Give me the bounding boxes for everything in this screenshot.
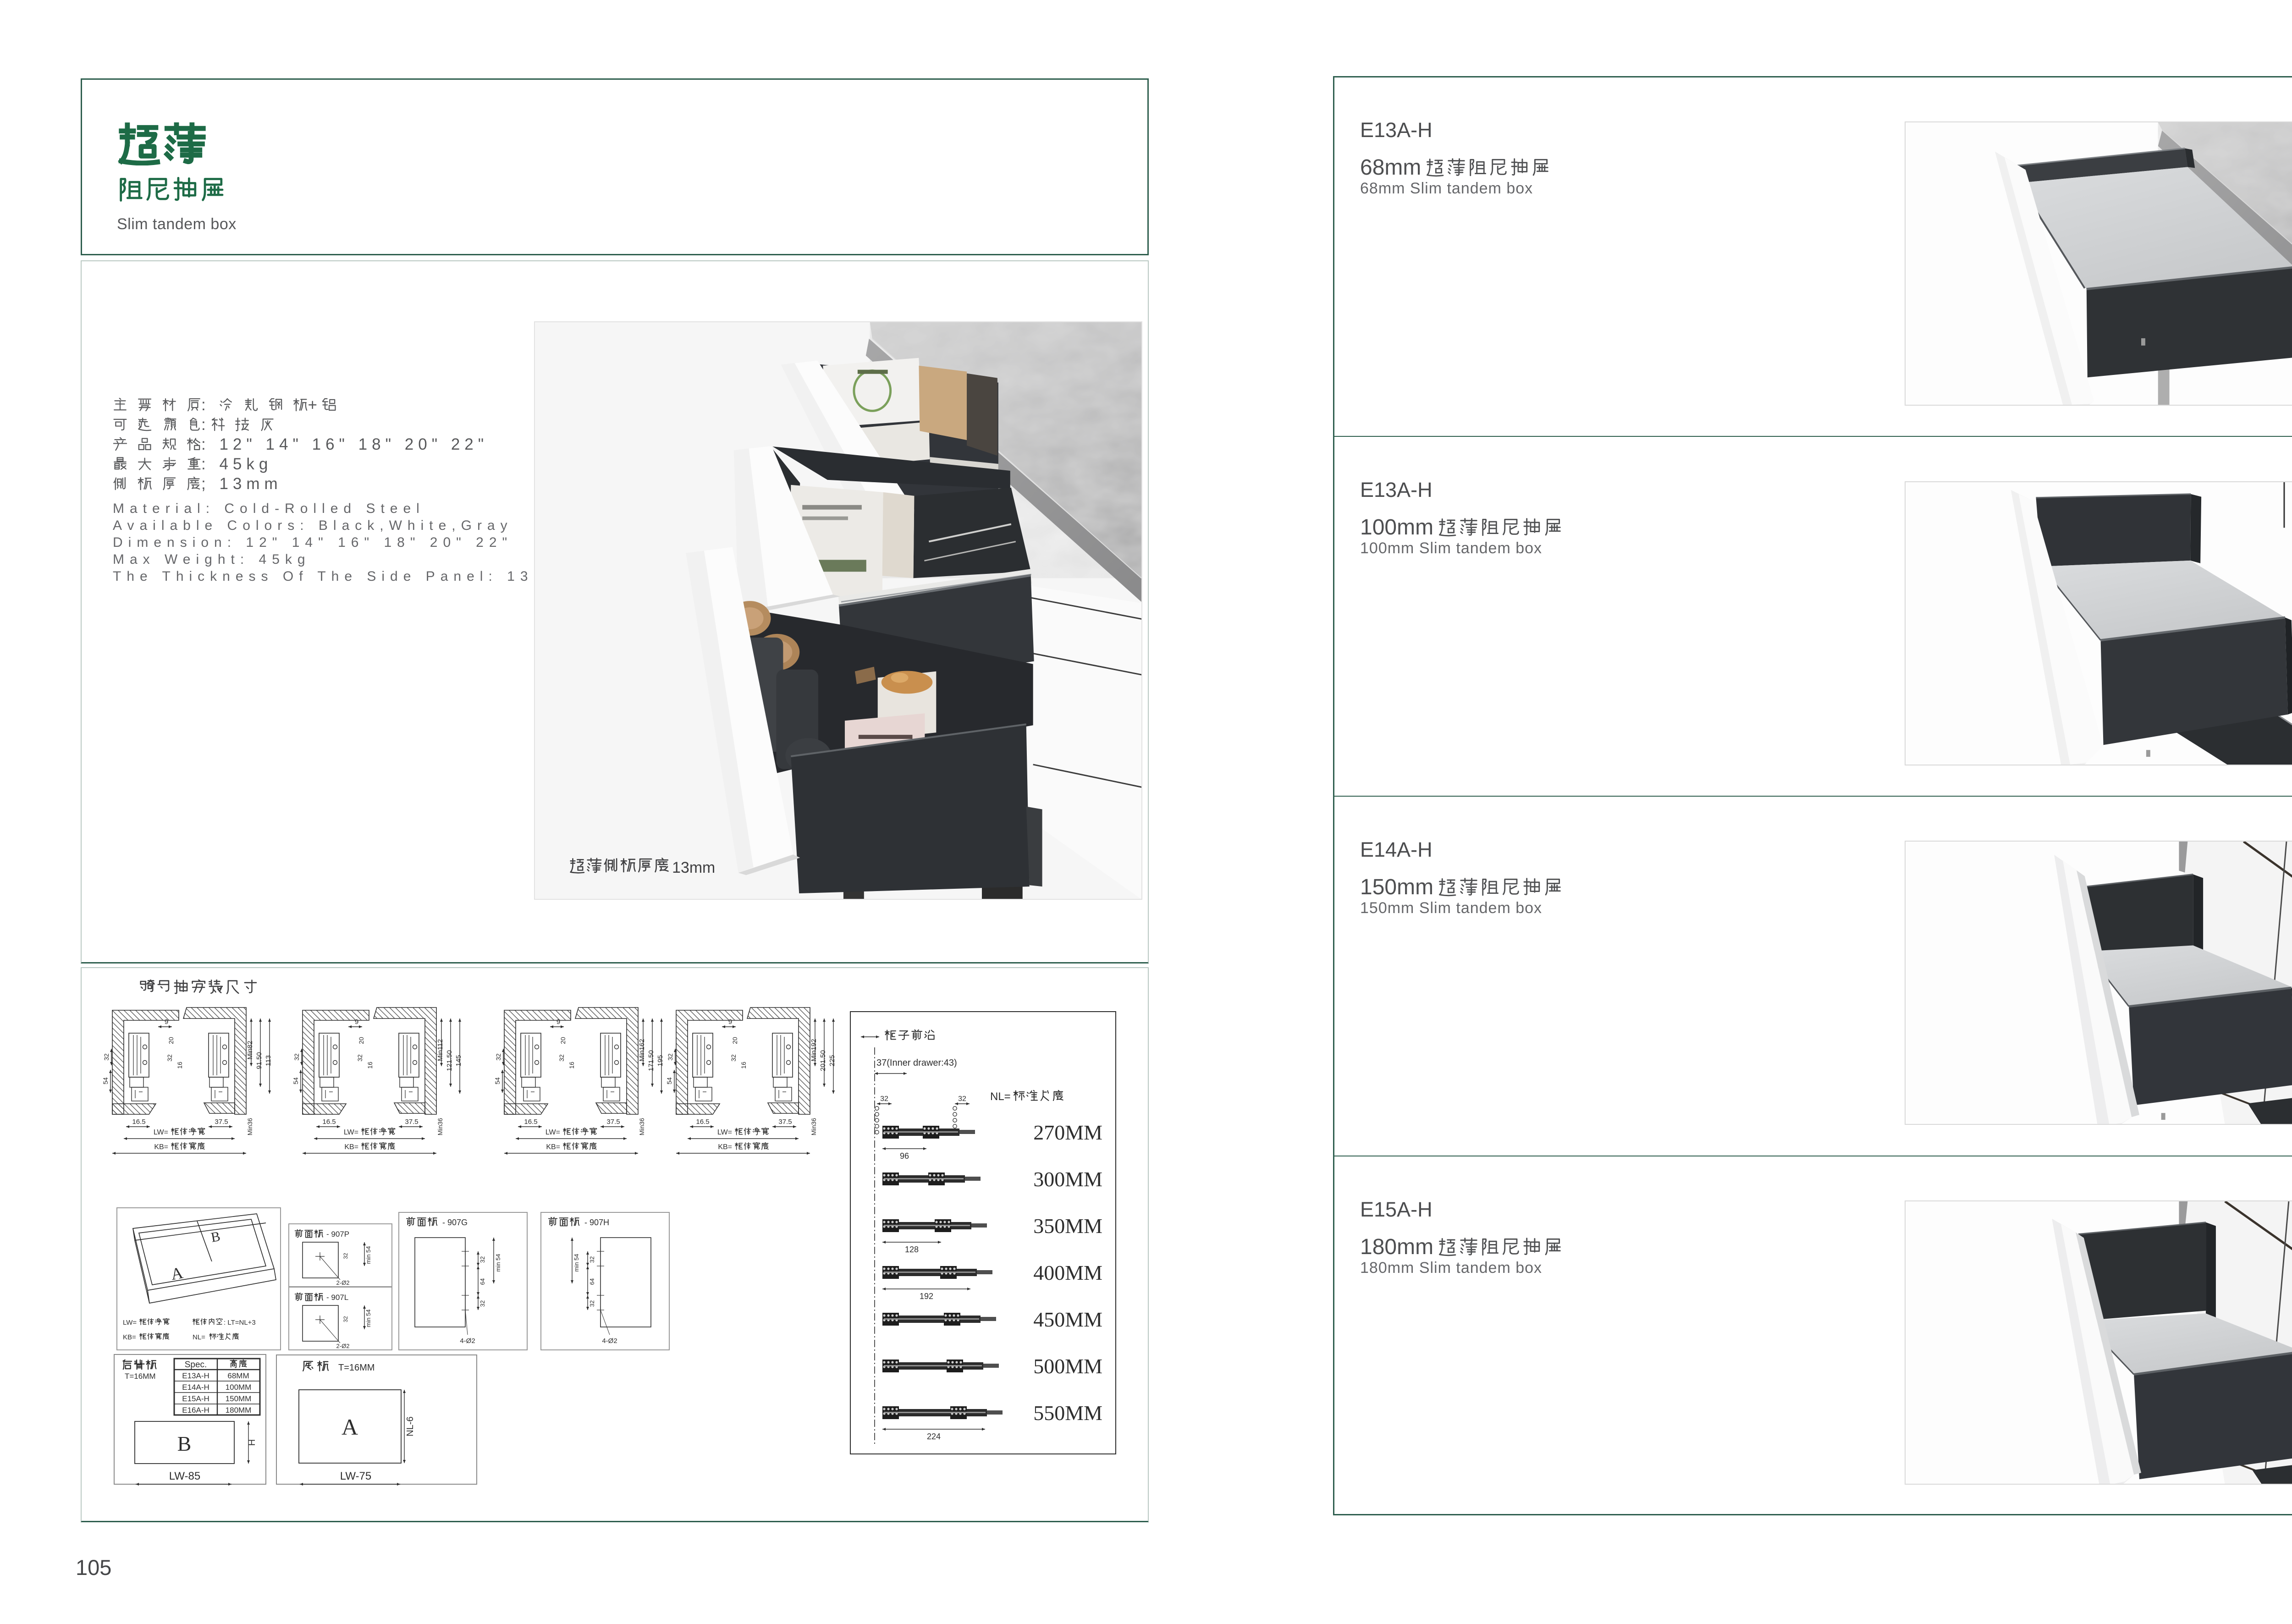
- svg-text:37.5: 37.5: [606, 1118, 620, 1126]
- svg-text:E14A-H: E14A-H: [182, 1383, 209, 1392]
- svg-text:32: 32: [880, 1095, 888, 1103]
- svg-text:32: 32: [667, 1053, 674, 1061]
- svg-text:128: 128: [905, 1245, 919, 1254]
- svg-text:32: 32: [342, 1316, 349, 1322]
- svg-text:E15A-H: E15A-H: [182, 1394, 209, 1403]
- svg-text:9: 9: [355, 1018, 358, 1026]
- svg-text:121.50: 121.50: [446, 1050, 453, 1071]
- svg-text:2-Ø2: 2-Ø2: [336, 1343, 350, 1349]
- svg-text:T=16MM: T=16MM: [338, 1363, 375, 1373]
- svg-text:13mm: 13mm: [672, 859, 715, 876]
- svg-text:20: 20: [731, 1037, 738, 1044]
- svg-text:32: 32: [479, 1300, 486, 1307]
- svg-text:180MM: 180MM: [226, 1406, 252, 1415]
- svg-text:16.5: 16.5: [524, 1118, 537, 1126]
- svg-text:KB=: KB=: [718, 1143, 732, 1151]
- svg-text:Min162: Min162: [638, 1039, 646, 1061]
- svg-text:113: 113: [264, 1055, 272, 1066]
- svg-text:37.5: 37.5: [778, 1118, 792, 1126]
- svg-text:A: A: [170, 1263, 185, 1283]
- svg-text:450MM: 450MM: [1033, 1308, 1102, 1331]
- svg-text:16.5: 16.5: [132, 1118, 145, 1126]
- svg-text:32: 32: [558, 1054, 565, 1062]
- svg-text:201.50: 201.50: [819, 1050, 827, 1071]
- svg-text:270MM: 270MM: [1033, 1121, 1102, 1144]
- svg-text:54: 54: [666, 1077, 673, 1085]
- svg-text:54: 54: [102, 1077, 109, 1085]
- svg-text:- 907G: - 907G: [442, 1218, 468, 1227]
- svg-text:LW=: LW=: [344, 1129, 358, 1136]
- svg-text:32: 32: [166, 1054, 173, 1062]
- svg-text:32: 32: [495, 1053, 502, 1061]
- svg-text:150MM: 150MM: [226, 1394, 252, 1403]
- svg-text:NL=: NL=: [990, 1090, 1011, 1103]
- svg-text:4-Ø2: 4-Ø2: [602, 1337, 617, 1345]
- svg-text:LW=: LW=: [154, 1129, 168, 1136]
- svg-text:32: 32: [103, 1053, 110, 1061]
- svg-text:- 907H: - 907H: [584, 1218, 609, 1227]
- svg-text:16: 16: [740, 1062, 747, 1069]
- svg-text:- 907L: - 907L: [326, 1293, 348, 1302]
- svg-text:20: 20: [559, 1037, 567, 1044]
- svg-text:32: 32: [958, 1095, 966, 1103]
- svg-text:Spec.: Spec.: [185, 1360, 207, 1370]
- svg-text:Min36: Min36: [246, 1118, 253, 1135]
- svg-text:NL=: NL=: [193, 1333, 205, 1341]
- svg-text:32: 32: [356, 1054, 364, 1062]
- svg-text:2-Ø2: 2-Ø2: [336, 1279, 350, 1286]
- svg-text:225: 225: [828, 1055, 836, 1066]
- svg-text:Min192: Min192: [810, 1039, 818, 1061]
- svg-text:9: 9: [165, 1018, 168, 1026]
- svg-text:16: 16: [568, 1062, 575, 1069]
- svg-text:min 54: min 54: [365, 1309, 372, 1327]
- svg-text:300MM: 300MM: [1033, 1167, 1102, 1191]
- svg-text:195: 195: [656, 1055, 664, 1066]
- svg-text:H: H: [247, 1439, 257, 1446]
- svg-text:: LT=NL+3: : LT=NL+3: [224, 1319, 256, 1327]
- svg-text:37.5: 37.5: [215, 1118, 228, 1126]
- svg-text:16: 16: [176, 1062, 183, 1069]
- svg-text:550MM: 550MM: [1033, 1401, 1102, 1425]
- svg-text:145: 145: [455, 1055, 463, 1066]
- svg-text:T=16MM: T=16MM: [125, 1372, 156, 1381]
- svg-text:32: 32: [730, 1054, 737, 1062]
- svg-text:32: 32: [589, 1256, 595, 1263]
- svg-text:16: 16: [366, 1062, 374, 1069]
- svg-text:54: 54: [292, 1077, 299, 1085]
- svg-text:min 54: min 54: [365, 1246, 372, 1264]
- svg-text:KB=: KB=: [154, 1143, 168, 1151]
- svg-text:64: 64: [479, 1278, 486, 1285]
- svg-text:400MM: 400MM: [1033, 1261, 1102, 1284]
- svg-text:68MM: 68MM: [227, 1371, 249, 1380]
- svg-text:16.5: 16.5: [322, 1118, 336, 1126]
- svg-text:37.5: 37.5: [405, 1118, 418, 1126]
- svg-text:32: 32: [293, 1053, 300, 1061]
- svg-text:LW-75: LW-75: [340, 1470, 371, 1482]
- svg-text:KB=: KB=: [123, 1333, 136, 1341]
- svg-text:37(Inner drawer:43): 37(Inner drawer:43): [876, 1058, 957, 1068]
- svg-text:20: 20: [358, 1037, 365, 1044]
- svg-text:96: 96: [900, 1151, 909, 1161]
- svg-text:NL-6: NL-6: [405, 1416, 415, 1436]
- svg-text:Min36: Min36: [638, 1118, 645, 1135]
- svg-text:Min36: Min36: [810, 1118, 817, 1135]
- svg-text:32: 32: [479, 1256, 486, 1263]
- svg-text:A: A: [342, 1414, 358, 1440]
- svg-text:LW=: LW=: [545, 1129, 560, 1136]
- svg-text:224: 224: [927, 1432, 941, 1441]
- svg-text:91.50: 91.50: [255, 1052, 263, 1069]
- svg-text:32: 32: [589, 1300, 595, 1307]
- svg-text:350MM: 350MM: [1033, 1214, 1102, 1238]
- svg-text:- 907P: - 907P: [326, 1230, 349, 1239]
- svg-text:min 54: min 54: [495, 1254, 501, 1272]
- svg-text:171.50: 171.50: [647, 1050, 655, 1071]
- svg-text:192: 192: [920, 1292, 933, 1301]
- svg-text:4-Ø2: 4-Ø2: [460, 1337, 475, 1345]
- svg-text:9: 9: [728, 1018, 732, 1026]
- svg-text:LW=: LW=: [123, 1319, 137, 1327]
- svg-text:B: B: [177, 1432, 192, 1455]
- svg-text:B: B: [210, 1229, 221, 1245]
- svg-text:20: 20: [167, 1037, 175, 1044]
- svg-text:LW-85: LW-85: [169, 1470, 200, 1482]
- svg-text:100MM: 100MM: [226, 1383, 252, 1392]
- svg-text:Min112: Min112: [436, 1039, 444, 1061]
- svg-text:Min36: Min36: [436, 1118, 444, 1135]
- svg-text:54: 54: [494, 1077, 501, 1085]
- svg-text:E16A-H: E16A-H: [182, 1406, 209, 1415]
- svg-text:500MM: 500MM: [1033, 1354, 1102, 1378]
- svg-text:9: 9: [556, 1018, 560, 1026]
- svg-text:64: 64: [589, 1278, 595, 1285]
- svg-text:KB=: KB=: [546, 1143, 560, 1151]
- svg-text:KB=: KB=: [344, 1143, 358, 1151]
- svg-text:LW=: LW=: [717, 1129, 732, 1136]
- svg-text:min 54: min 54: [573, 1254, 580, 1272]
- svg-text:32: 32: [342, 1253, 349, 1259]
- svg-text:Min82: Min82: [246, 1041, 254, 1060]
- svg-text:16.5: 16.5: [696, 1118, 709, 1126]
- svg-text:E13A-H: E13A-H: [182, 1371, 209, 1380]
